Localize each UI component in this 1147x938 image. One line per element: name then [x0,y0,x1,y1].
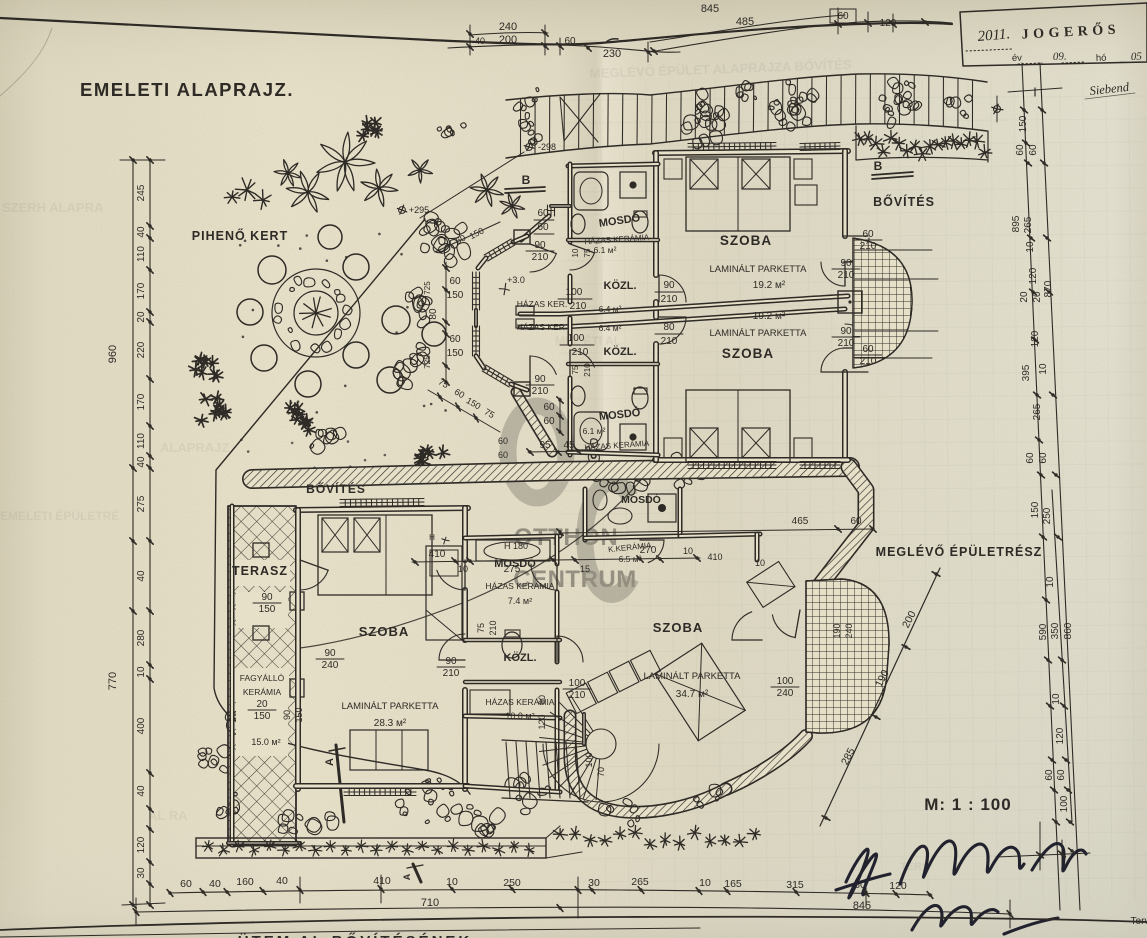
svg-text:250: 250 [1042,507,1053,524]
svg-text:725: 725 [423,355,432,369]
svg-text:60: 60 [862,229,874,240]
svg-text:10: 10 [1045,576,1056,588]
svg-text:95: 95 [539,440,551,451]
svg-text:20: 20 [1019,291,1030,303]
svg-text:19.2 м²: 19.2 м² [753,311,786,322]
svg-text:SZOBA: SZOBA [653,620,704,635]
svg-text:40: 40 [136,570,147,582]
svg-text:HÁZAS KERÁMIA: HÁZAS KERÁMIA [486,581,555,591]
svg-text:15: 15 [580,564,590,574]
svg-text:SZERH ALAPRA: SZERH ALAPRA [2,200,104,215]
svg-text:75: 75 [571,365,580,374]
svg-text:410: 410 [373,875,391,887]
svg-text:30: 30 [136,867,147,879]
svg-text:170: 170 [136,282,147,299]
svg-text:60: 60 [498,450,508,460]
svg-text:210: 210 [488,620,498,635]
svg-text:90: 90 [324,648,336,659]
svg-text:év: év [1012,53,1023,64]
svg-text:210: 210 [838,270,855,281]
svg-text:+3.0: +3.0 [507,275,525,285]
svg-text:10.0 м²: 10.0 м² [505,711,534,721]
svg-text:220: 220 [136,341,147,358]
svg-text:240: 240 [844,623,854,638]
svg-text:120: 120 [1055,727,1066,744]
svg-text:590: 590 [1038,623,1049,640]
svg-text:350: 350 [1050,622,1061,639]
svg-text:10: 10 [1038,363,1049,375]
svg-text:6.1 м²: 6.1 м² [583,426,606,436]
svg-text:100: 100 [566,287,583,298]
svg-text:90: 90 [663,280,675,291]
svg-text:10: 10 [136,666,147,678]
svg-text:90: 90 [282,710,292,720]
svg-text:710: 710 [421,897,439,909]
svg-text:B: B [522,173,531,187]
svg-text:EMELETI ÉPÜLETRÉ: EMELETI ÉPÜLETRÉ [0,508,119,523]
svg-text:230: 230 [603,48,621,60]
svg-text:150: 150 [294,707,304,722]
svg-text:90: 90 [261,592,273,603]
svg-text:PIHENŐ KERT: PIHENŐ KERT [192,228,288,243]
svg-text:SZOBA: SZOBA [722,346,774,361]
svg-text:60: 60 [850,516,862,527]
svg-text:34.7 м²: 34.7 м² [676,689,709,700]
svg-text:60: 60 [1015,144,1026,156]
svg-text:KÖZL.: KÖZL. [504,651,537,664]
svg-text:265: 265 [1032,403,1043,420]
svg-text:190: 190 [832,623,842,638]
svg-text:280: 280 [136,629,147,646]
svg-text:110: 110 [136,246,147,262]
svg-text:210: 210 [860,241,877,252]
svg-text:150: 150 [1018,115,1029,132]
svg-text:725: 725 [423,281,432,295]
svg-text:BŐVÍTÉS: BŐVÍTÉS [873,194,935,209]
svg-text:895: 895 [1011,215,1022,232]
svg-text:170: 170 [136,393,147,410]
svg-text:19.2 м²: 19.2 м² [753,280,786,291]
svg-text:210: 210 [838,338,855,349]
svg-text:40: 40 [136,226,147,238]
svg-text:40: 40 [136,456,147,468]
svg-text:-298: -298 [538,142,556,152]
svg-text:15.0 м²: 15.0 м² [251,737,280,747]
svg-text:110: 110 [136,433,147,449]
svg-text:SZOBA: SZOBA [720,233,772,248]
svg-text:860: 860 [1063,622,1074,639]
svg-text:150: 150 [1030,501,1041,518]
svg-text:210: 210 [583,363,592,377]
svg-text:150: 150 [447,290,464,301]
svg-text:80: 80 [663,322,675,333]
svg-text:90: 90 [534,374,546,385]
svg-text:960: 960 [107,345,119,363]
svg-text:LAMINÁLT PARKETTA: LAMINÁLT PARKETTA [644,671,742,682]
svg-text:120: 120 [537,714,547,729]
svg-text:845: 845 [701,3,719,15]
svg-text:245: 245 [136,184,147,201]
svg-text:10: 10 [699,877,711,889]
svg-text:100: 100 [1059,795,1070,812]
svg-text:60: 60 [1038,452,1049,464]
svg-text:40: 40 [209,878,221,890]
svg-text:B: B [874,159,883,173]
svg-text:90: 90 [840,258,852,269]
svg-text:240: 240 [322,660,339,671]
svg-text:HÁZAS KER.: HÁZAS KER. [517,299,568,309]
svg-text:60: 60 [180,878,192,890]
svg-text:60: 60 [1025,452,1036,464]
svg-text:60: 60 [543,402,555,413]
svg-text:LAMINÁLT PARKETTA: LAMINÁLT PARKETTA [710,328,808,339]
svg-text:EMELETI ALAPRAJZ.: EMELETI ALAPRAJZ. [80,79,294,100]
svg-text:465: 465 [792,516,809,527]
svg-text:A: A [402,873,412,880]
svg-text:100: 100 [584,752,594,767]
svg-text:ÜTEM AL BŐVÍTÉSÉNEK: ÜTEM AL BŐVÍTÉSÉNEK [238,932,473,938]
svg-text:LAMINÁLT PARKETTA: LAMINÁLT PARKETTA [710,264,808,275]
svg-text:150: 150 [254,711,271,722]
svg-text:400: 400 [136,717,147,734]
svg-text:240: 240 [499,21,517,33]
svg-text:90: 90 [534,240,546,251]
svg-text:ALAPRAJZ: ALAPRAJZ [160,440,229,455]
svg-text:05: 05 [1131,51,1143,63]
svg-text:60: 60 [862,344,874,355]
svg-text:AL RA: AL RA [148,808,188,823]
svg-text:MEGLÉVŐ ÉPÜLETRÉSZ: MEGLÉVŐ ÉPÜLETRÉSZ [876,544,1043,559]
svg-text:275: 275 [136,495,147,512]
svg-text:10: 10 [446,876,458,888]
svg-text:150: 150 [259,604,276,615]
svg-text:240: 240 [777,688,794,699]
svg-text:A: A [324,758,336,766]
svg-text:210: 210 [572,347,589,358]
svg-text:165: 165 [724,878,742,890]
svg-text:60: 60 [1056,769,1067,781]
svg-text:70: 70 [596,767,606,777]
svg-text:MOSDÓ: MOSDÓ [494,557,536,570]
svg-text:H 180: H 180 [504,541,528,551]
svg-text:40: 40 [136,785,147,797]
svg-text:45: 45 [563,440,575,451]
svg-text:100: 100 [568,333,585,344]
svg-text:6.5 м²: 6.5 м² [619,554,642,564]
svg-text:100: 100 [777,676,794,687]
svg-text:75: 75 [583,248,592,257]
svg-text:TERASZ: TERASZ [232,564,288,578]
svg-text:10: 10 [755,558,765,568]
svg-text:75: 75 [476,623,486,633]
svg-text:210: 210 [661,336,678,347]
svg-text:315: 315 [786,879,804,891]
svg-text:160: 160 [236,876,254,888]
svg-text:120: 120 [889,880,907,892]
svg-text:210: 210 [532,252,549,263]
svg-text:KÖZL.: KÖZL. [604,345,637,358]
svg-text:20: 20 [136,311,147,323]
svg-text:90: 90 [840,326,852,337]
svg-text:20: 20 [256,699,268,710]
svg-text:410: 410 [429,549,446,560]
svg-text:BŐVÍTÉS: BŐVÍTÉS [306,481,366,496]
svg-text:120: 120 [136,836,147,853]
svg-text:28.3 м²: 28.3 м² [374,718,407,729]
svg-text:80: 80 [428,308,439,320]
svg-text:60: 60 [537,222,549,233]
svg-text:2011.: 2011. [977,26,1011,45]
svg-text:+295: +295 [409,205,429,215]
svg-text:210: 210 [570,301,587,312]
svg-text:410: 410 [707,552,722,562]
svg-text:SZOBA: SZOBA [359,624,410,639]
svg-text:6.4 м²: 6.4 м² [599,323,622,333]
svg-text:10: 10 [683,546,693,556]
svg-text:100: 100 [569,678,586,689]
svg-text:60: 60 [449,334,461,345]
svg-text:6.1 м²: 6.1 м² [594,245,617,255]
svg-text:H: H [429,533,435,542]
svg-text:395: 395 [1021,364,1032,381]
svg-text:265: 265 [631,876,649,888]
svg-text:10: 10 [1025,241,1036,253]
svg-text:M: 1 : 100: M: 1 : 100 [924,795,1011,814]
svg-text:60: 60 [537,208,549,219]
svg-text:485: 485 [736,16,754,28]
svg-text:210: 210 [661,294,678,305]
svg-text:60: 60 [449,276,461,287]
svg-text:150: 150 [447,348,464,359]
svg-text:FAGYÁLLÓ: FAGYÁLLÓ [240,673,285,683]
svg-text:250: 250 [503,877,521,889]
svg-text:10: 10 [571,248,580,257]
svg-text:210: 210 [569,690,586,701]
svg-text:90: 90 [445,656,457,667]
svg-text:7.4 м²: 7.4 м² [508,596,532,606]
svg-text:845: 845 [853,900,871,912]
svg-text:09.: 09. [1053,51,1067,63]
svg-text:KERÁMIA: KERÁMIA [243,687,282,697]
svg-text:MOSDÓ: MOSDÓ [621,493,661,506]
svg-text:210: 210 [443,668,460,679]
svg-text:hó: hó [1096,53,1107,64]
svg-text:120: 120 [1028,267,1039,284]
svg-text:40: 40 [276,875,288,887]
svg-text:6.4 м²: 6.4 м² [599,304,622,314]
svg-text:60: 60 [543,416,555,427]
svg-text:770: 770 [107,672,119,690]
svg-text:60: 60 [1044,769,1055,781]
svg-text:60: 60 [837,11,849,22]
svg-text:210: 210 [860,356,877,367]
svg-text:265: 265 [1023,216,1034,233]
svg-text:HÁZAS KERÁMIA: HÁZAS KERÁMIA [486,697,555,707]
svg-text:10: 10 [458,564,468,574]
svg-text:KÖZL.: KÖZL. [604,279,637,292]
svg-text:210: 210 [532,386,549,397]
svg-text:LAMINÁLT PARKETTA: LAMINÁLT PARKETTA [342,701,440,712]
svg-text:HÁZAS KER.: HÁZAS KER. [517,322,568,332]
svg-text:60: 60 [498,436,508,446]
